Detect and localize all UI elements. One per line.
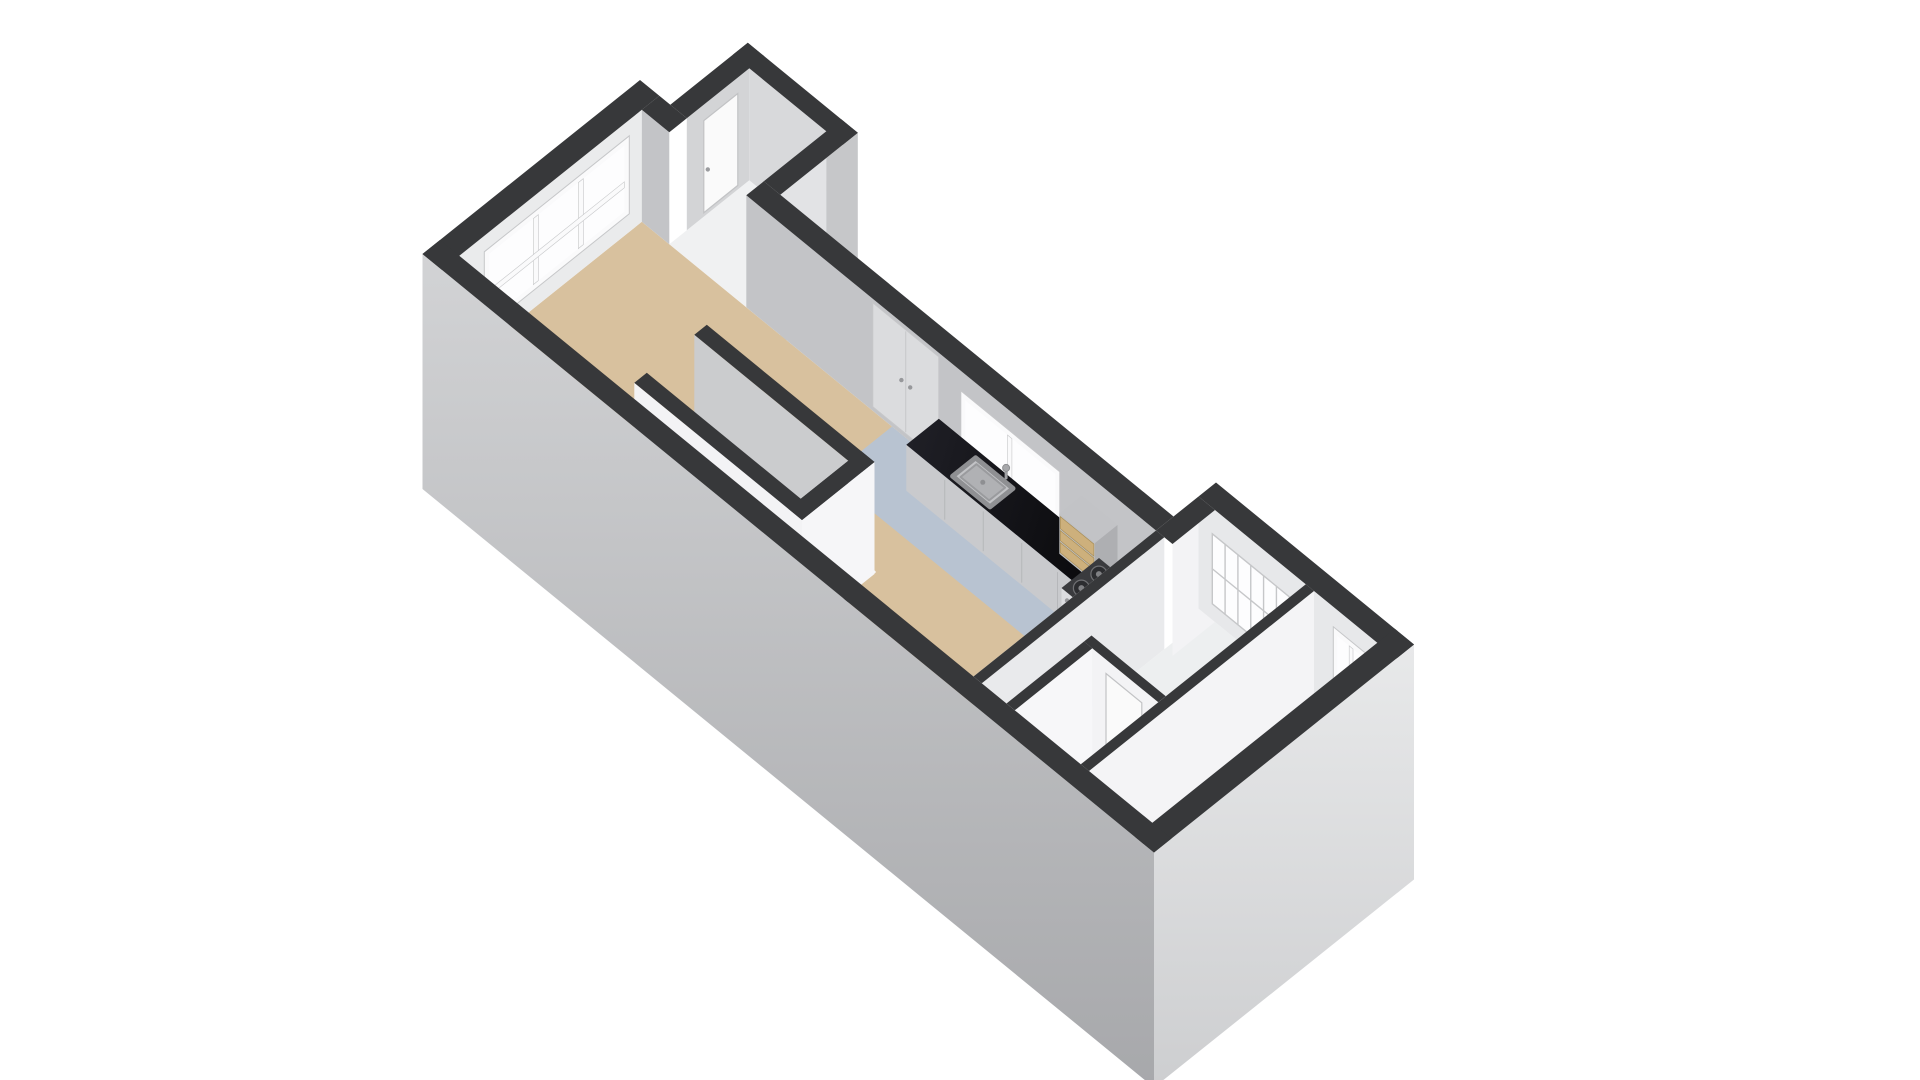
- floorplan-3d-render: [0, 0, 1920, 1080]
- facade-window-mullion: [578, 179, 583, 249]
- storage-door-handle-icon: [706, 167, 710, 171]
- faucet-icon: [1003, 464, 1010, 471]
- floorplan-canvas: [0, 0, 1920, 1080]
- closet-knob-icon: [908, 385, 912, 389]
- facade-window-mullion: [533, 215, 538, 285]
- sink-drain-icon: [980, 480, 985, 485]
- closet-knob-icon: [899, 378, 903, 382]
- ne-wall-face: [642, 110, 670, 245]
